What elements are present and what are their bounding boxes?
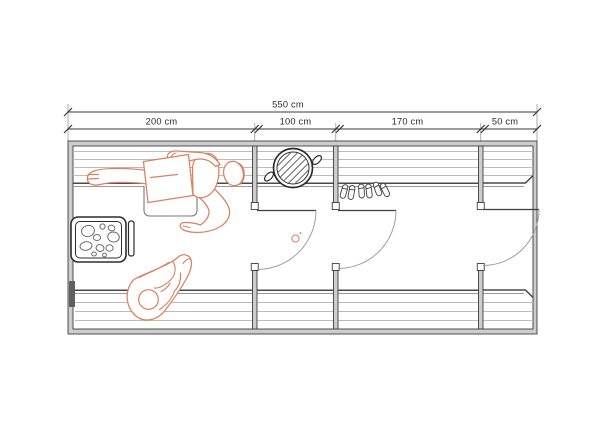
dimension-label-segment-3: 170 cm bbox=[392, 117, 424, 127]
sauna-heater-icon bbox=[71, 217, 134, 262]
wall-vent bbox=[69, 281, 75, 307]
dimension-label-segment-4: 50 cm bbox=[492, 117, 518, 127]
heater-guard-rail-icon bbox=[129, 221, 135, 256]
dimension-label-segment-1: 200 cm bbox=[146, 117, 178, 127]
dimension-label-segment-2: 100 cm bbox=[280, 117, 312, 127]
dimension-layer: 550 cm 200 cm 100 cm 170 cm 50 cm bbox=[64, 100, 541, 142]
floor-plan-canvas: 550 cm 200 cm 100 cm 170 cm 50 cm bbox=[0, 0, 600, 438]
dimension-label-total: 550 cm bbox=[272, 100, 304, 110]
